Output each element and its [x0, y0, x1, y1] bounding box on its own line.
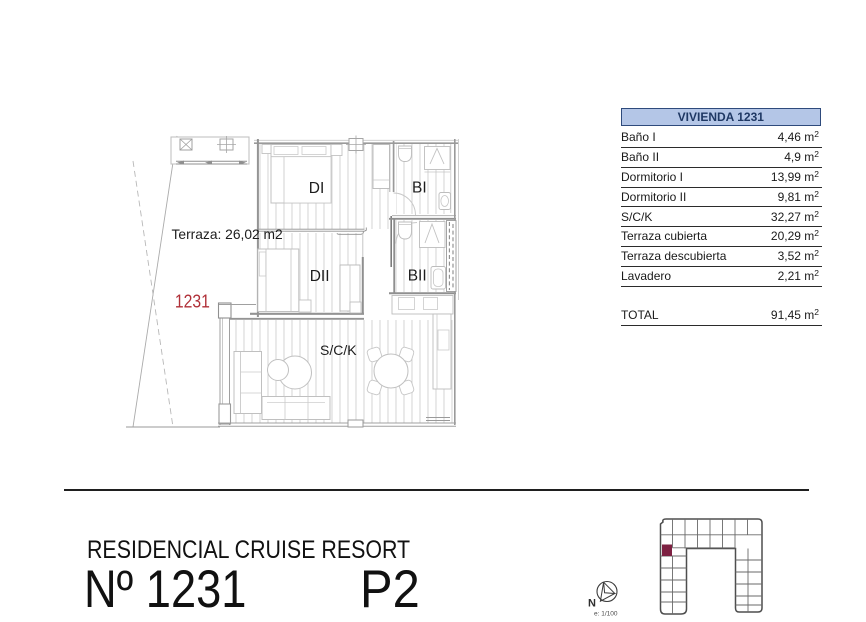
svg-text:N: N — [588, 598, 596, 610]
svg-text:1231: 1231 — [175, 291, 210, 312]
svg-text:DI: DI — [309, 180, 325, 197]
svg-text:BII: BII — [408, 267, 427, 284]
svg-text:DII: DII — [310, 268, 330, 285]
svg-text:Terraza: 26,02 m2: Terraza: 26,02 m2 — [172, 227, 283, 242]
svg-text:e: 1/100: e: 1/100 — [594, 611, 618, 618]
svg-text:BI: BI — [412, 179, 427, 196]
svg-text:S/C/K: S/C/K — [320, 342, 357, 358]
